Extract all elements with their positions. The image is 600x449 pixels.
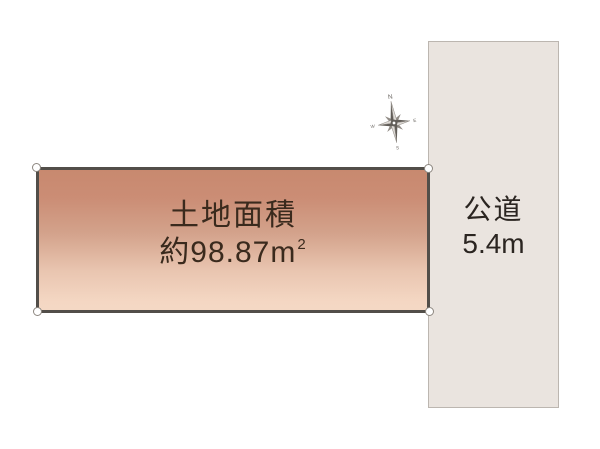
- road-name-text: 公道: [462, 193, 524, 227]
- boundary-marker-bottom-left: [33, 307, 42, 316]
- parcel-label: 土地面積 約98.87m2: [159, 197, 306, 276]
- boundary-marker-bottom-right: [425, 307, 434, 316]
- area-exponent: 2: [297, 226, 306, 263]
- compass-west-label: W: [370, 123, 376, 129]
- compass-north-label: N: [388, 93, 394, 101]
- area-unit: m: [270, 236, 296, 269]
- area-number: 約98.87: [159, 236, 270, 269]
- boundary-marker-top-left: [32, 163, 41, 172]
- compass-east-label: E: [413, 118, 417, 123]
- compass-south-label: S: [396, 145, 400, 150]
- road-width-text: 5.4m: [462, 227, 524, 261]
- land-area-value: 約98.87m2: [159, 234, 306, 276]
- public-road-area: 公道 5.4m: [428, 41, 559, 408]
- compass-rose-icon: N E S W: [370, 88, 418, 156]
- boundary-marker-top-right: [424, 164, 433, 173]
- land-parcel: 土地面積 約98.87m2: [36, 167, 430, 313]
- land-area-title: 土地面積: [159, 197, 306, 234]
- road-label: 公道 5.4m: [462, 193, 524, 261]
- site-plan-diagram: 公道 5.4m 土地面積 約98.87m2: [0, 0, 600, 449]
